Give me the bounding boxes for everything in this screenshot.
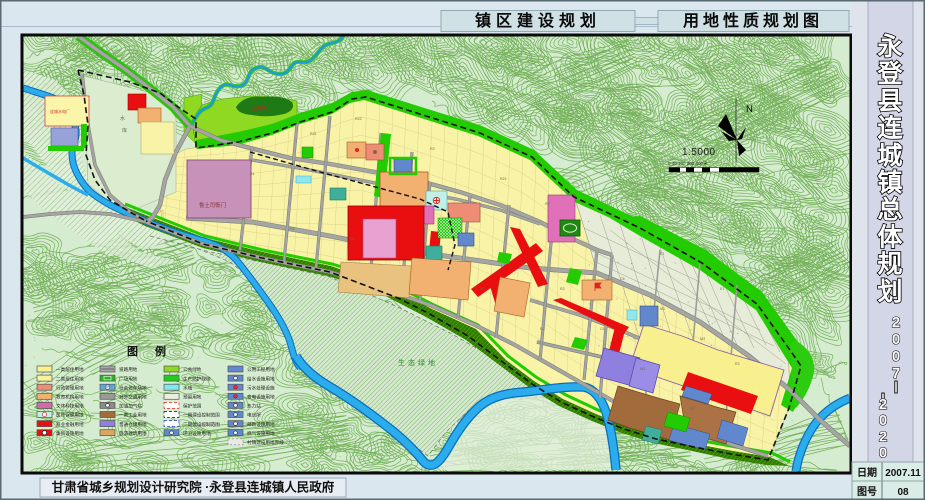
- svg-text:7: 7: [892, 365, 900, 382]
- svg-text:医疗保健用地: 医疗保健用地: [56, 412, 84, 419]
- svg-text:预留用地: 预留用地: [183, 394, 202, 401]
- svg-text:R2: R2: [430, 147, 435, 151]
- svg-text:热力站: 热力站: [247, 403, 261, 410]
- svg-text:水: 水: [120, 115, 125, 122]
- svg-text:P: P: [106, 385, 109, 390]
- svg-text:0: 0: [879, 412, 887, 429]
- svg-text:城: 城: [877, 142, 902, 170]
- svg-text:行政管理用地: 行政管理用地: [56, 384, 84, 391]
- svg-text:给水设施用地: 给水设施用地: [247, 375, 275, 382]
- svg-text:体: 体: [877, 223, 903, 251]
- svg-text:生态绿地: 生态绿地: [398, 358, 438, 367]
- svg-text:电信所: 电信所: [247, 412, 261, 419]
- svg-text:M1: M1: [690, 407, 695, 411]
- svg-text:生产防护绿地: 生产防护绿地: [183, 375, 211, 382]
- svg-text:规: 规: [877, 251, 902, 279]
- svg-text:日期: 日期: [857, 466, 877, 479]
- svg-text:2: 2: [879, 396, 887, 413]
- svg-text:0: 0: [879, 445, 887, 462]
- svg-text:R1: R1: [250, 172, 255, 176]
- svg-text:划: 划: [877, 278, 902, 306]
- svg-text:保护范围: 保护范围: [183, 403, 202, 410]
- svg-text:R2: R2: [545, 202, 550, 206]
- svg-text:用地性质规划图: 用地性质规划图: [683, 11, 823, 30]
- svg-text:2: 2: [879, 428, 887, 445]
- svg-text:E1: E1: [720, 287, 724, 291]
- svg-text:R2: R2: [735, 362, 740, 366]
- svg-text:0: 0: [892, 348, 900, 365]
- svg-text:镇区建设规划: 镇区建设规划: [475, 11, 601, 30]
- svg-text:R21: R21: [310, 132, 317, 136]
- svg-text:二类居住用地: 二类居住用地: [56, 375, 84, 382]
- svg-text:公共绿地: 公共绿地: [183, 366, 202, 373]
- svg-text:邮政设施用地: 邮政设施用地: [247, 421, 275, 428]
- svg-text:二期建设控制范围: 二期建设控制范围: [183, 421, 220, 428]
- svg-text:显龙山: 显龙山: [252, 105, 267, 112]
- svg-text:社会停车场地: 社会停车场地: [119, 384, 147, 391]
- svg-text:G1: G1: [600, 327, 605, 331]
- svg-text:W1: W1: [640, 367, 645, 371]
- svg-text:一类居住用地: 一类居住用地: [56, 366, 84, 373]
- svg-text:污水处理设施: 污水处理设施: [247, 384, 275, 391]
- svg-text:水域: 水域: [183, 384, 193, 390]
- svg-text:R21: R21: [500, 177, 507, 181]
- svg-text:2007.11: 2007.11: [885, 468, 921, 479]
- svg-text:库: 库: [122, 127, 127, 134]
- svg-text:R2: R2: [290, 227, 295, 231]
- svg-text:R2: R2: [560, 287, 565, 291]
- svg-text:永: 永: [877, 33, 902, 61]
- svg-text:鲁土司衙门: 鲁土司衙门: [199, 201, 226, 209]
- svg-text:县: 县: [877, 87, 902, 115]
- svg-text:图号: 图号: [857, 486, 877, 498]
- svg-text:2: 2: [892, 314, 900, 331]
- svg-text:一类工业用地: 一类工业用地: [119, 412, 147, 419]
- svg-text:图例: 图例: [127, 344, 183, 358]
- svg-text:M1: M1: [700, 337, 705, 341]
- svg-text:对外交通用地: 对外交通用地: [119, 394, 147, 401]
- svg-text:燃气设施用地: 燃气设施用地: [247, 430, 275, 437]
- svg-text:广场用地: 广场用地: [119, 375, 138, 382]
- svg-text:甘肃省城乡规划设计研究院 ·永登县连城镇人民政府: 甘肃省城乡规划设计研究院 ·永登县连城镇人民政府: [52, 480, 335, 495]
- svg-text:教育机构用地: 教育机构用地: [56, 394, 84, 401]
- svg-text:R2: R2: [480, 287, 485, 291]
- svg-text:R2: R2: [540, 327, 545, 331]
- svg-text:连: 连: [877, 115, 903, 143]
- svg-text:一期建设控制范围: 一期建设控制范围: [183, 412, 220, 419]
- svg-text:C6: C6: [620, 277, 625, 281]
- svg-text:环卫设施用地: 环卫设施用地: [183, 430, 211, 437]
- svg-text:C2: C2: [350, 237, 355, 241]
- svg-text:连城水电厂: 连城水电厂: [50, 108, 70, 114]
- svg-text:加油加气站: 加油加气站: [119, 403, 142, 410]
- svg-text:R22: R22: [355, 117, 362, 121]
- svg-text:集贸设施用地: 集贸设施用地: [56, 430, 84, 437]
- svg-text:08: 08: [897, 487, 909, 498]
- svg-text:村镇建设用地界线: 村镇建设用地界线: [247, 439, 284, 446]
- svg-text:E1: E1: [660, 252, 664, 256]
- svg-text:公用工程用地: 公用工程用地: [247, 366, 275, 373]
- svg-text:1:5000: 1:5000: [682, 147, 716, 158]
- svg-text:M1: M1: [660, 307, 665, 311]
- svg-text:0: 0: [892, 331, 900, 348]
- svg-text:普通仓储用地: 普通仓储用地: [119, 421, 147, 428]
- svg-text:镇: 镇: [877, 169, 902, 197]
- svg-text:登: 登: [876, 59, 903, 88]
- svg-text:文体科技用地: 文体科技用地: [56, 403, 84, 410]
- svg-text:道路用地: 道路用地: [119, 366, 138, 373]
- svg-text:总: 总: [877, 196, 902, 224]
- svg-text:商业金融用地: 商业金融用地: [56, 421, 84, 428]
- svg-text:0 40 100 200 4: 0 40 100 200 400米: [668, 160, 708, 167]
- svg-text:变电设施用地: 变电设施用地: [247, 394, 275, 401]
- svg-text:旅游建筑用地: 旅游建筑用地: [119, 430, 147, 437]
- svg-text:N: N: [746, 104, 753, 115]
